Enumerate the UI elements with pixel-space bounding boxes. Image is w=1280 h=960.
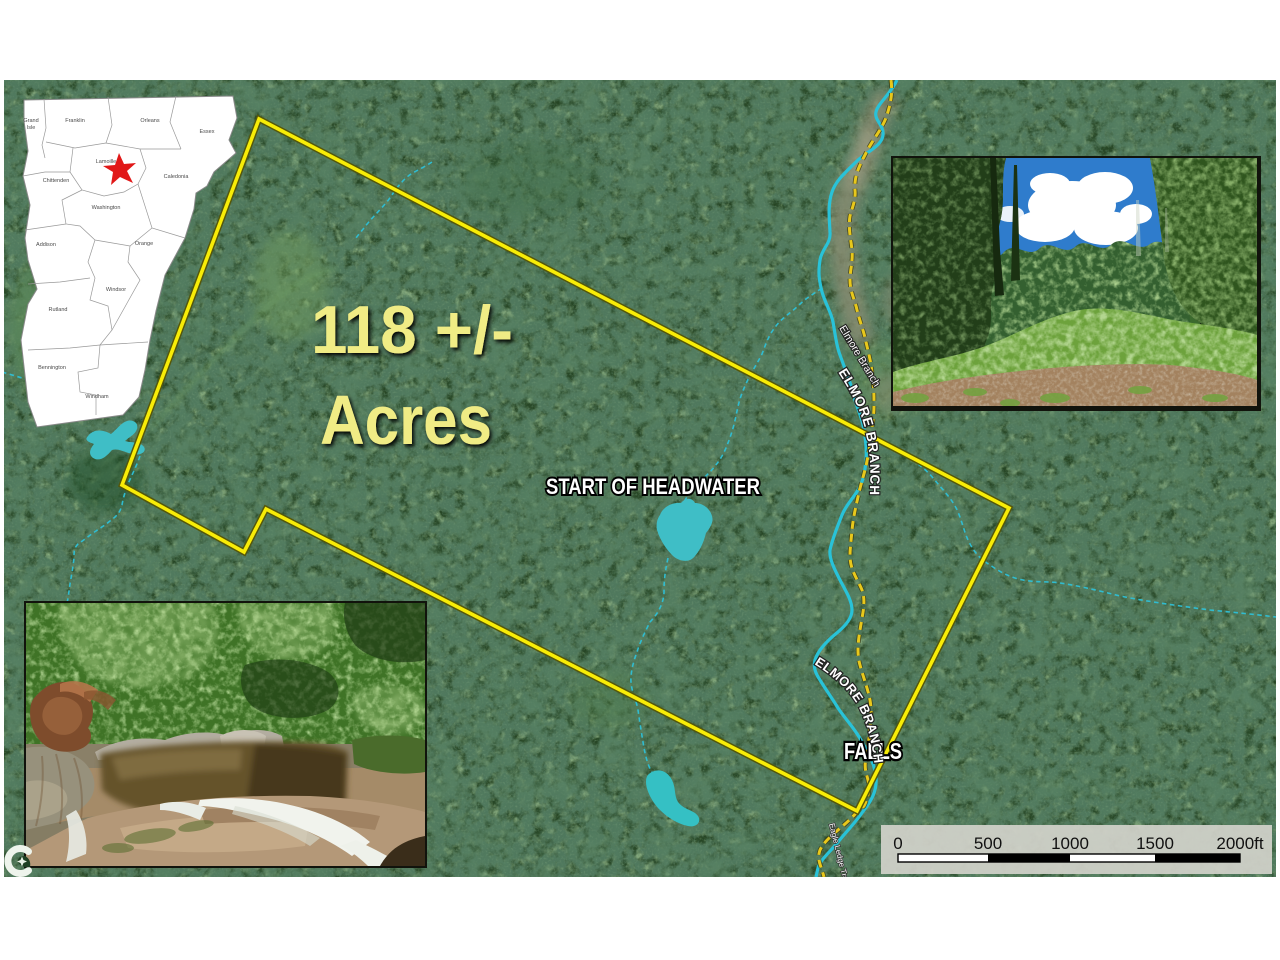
svg-text:1500: 1500 bbox=[1136, 834, 1174, 853]
svg-text:2000ft: 2000ft bbox=[1216, 834, 1264, 853]
svg-text:Addison: Addison bbox=[36, 242, 56, 248]
svg-text:Lamoille: Lamoille bbox=[96, 159, 116, 165]
svg-text:Orange: Orange bbox=[135, 241, 153, 247]
svg-text:1000: 1000 bbox=[1051, 834, 1089, 853]
svg-text:Washington: Washington bbox=[92, 205, 121, 211]
svg-text:118 +/-: 118 +/- bbox=[311, 292, 513, 368]
svg-text:Franklin: Franklin bbox=[65, 118, 85, 124]
svg-text:Orleans: Orleans bbox=[140, 118, 160, 124]
svg-text:Windsor: Windsor bbox=[106, 287, 126, 293]
svg-text:Essex: Essex bbox=[200, 129, 215, 135]
svg-text:Rutland: Rutland bbox=[49, 307, 68, 313]
svg-text:Bennington: Bennington bbox=[38, 365, 66, 371]
svg-text:Windham: Windham bbox=[85, 394, 109, 400]
svg-text:Isle: Isle bbox=[27, 125, 36, 131]
svg-text:Caledonia: Caledonia bbox=[164, 174, 190, 180]
svg-text:Chittenden: Chittenden bbox=[43, 178, 70, 184]
svg-text:0: 0 bbox=[893, 834, 902, 853]
svg-text:Grand: Grand bbox=[23, 118, 38, 124]
svg-text:500: 500 bbox=[974, 834, 1002, 853]
svg-text:Acres: Acres bbox=[320, 381, 492, 459]
svg-text:START OF HEADWATER: START OF HEADWATER bbox=[546, 474, 760, 499]
